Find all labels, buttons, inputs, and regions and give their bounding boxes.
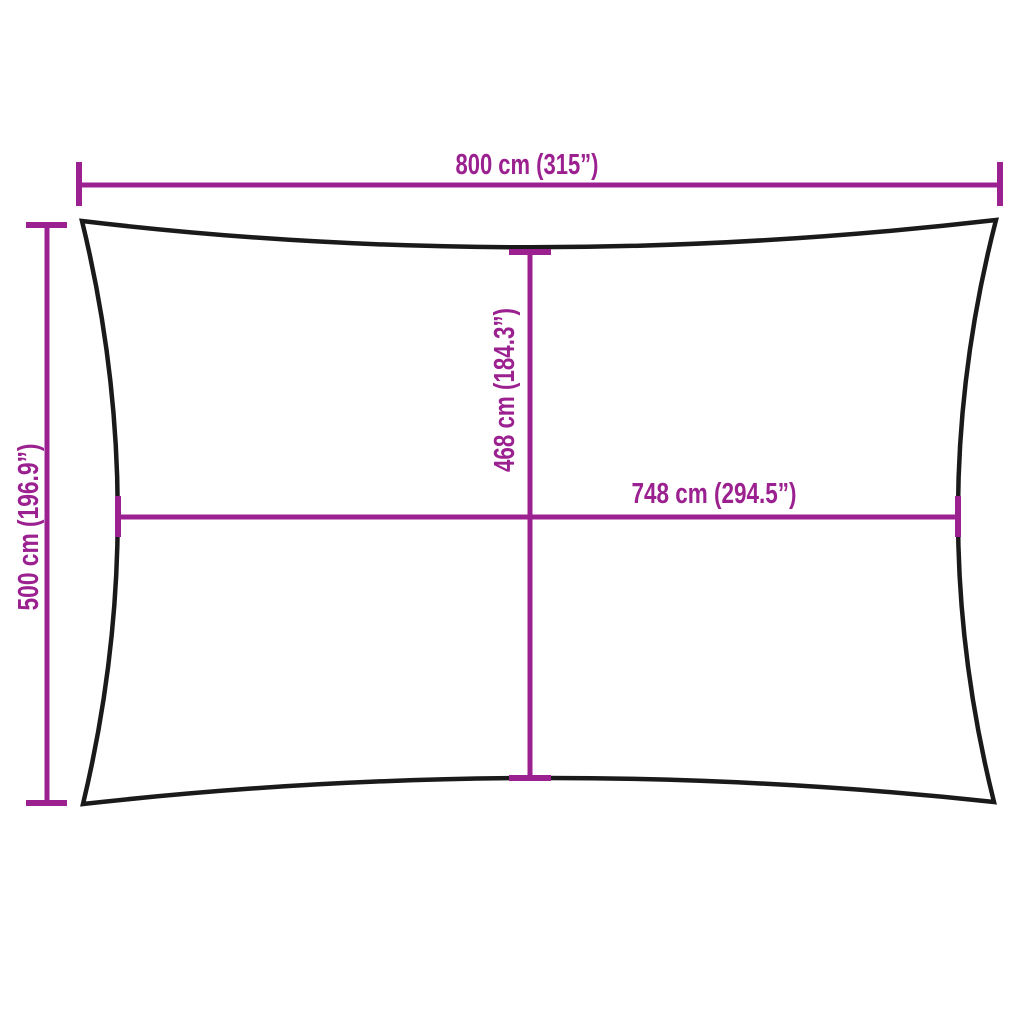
top-dimension: 800 cm (315”)	[79, 149, 1000, 206]
inner-width-label: 748 cm (294.5”)	[632, 478, 797, 510]
outer-height-label: 500 cm (196.9”)	[13, 444, 45, 611]
dimension-diagram: 800 cm (315”) 500 cm (196.9”) 468 cm (18…	[0, 0, 1024, 1024]
left-dimension: 500 cm (196.9”)	[13, 225, 67, 803]
sail-outline	[82, 220, 996, 804]
inner-height-label: 468 cm (184.3”)	[489, 308, 521, 472]
outer-width-label: 800 cm (315”)	[456, 149, 599, 181]
